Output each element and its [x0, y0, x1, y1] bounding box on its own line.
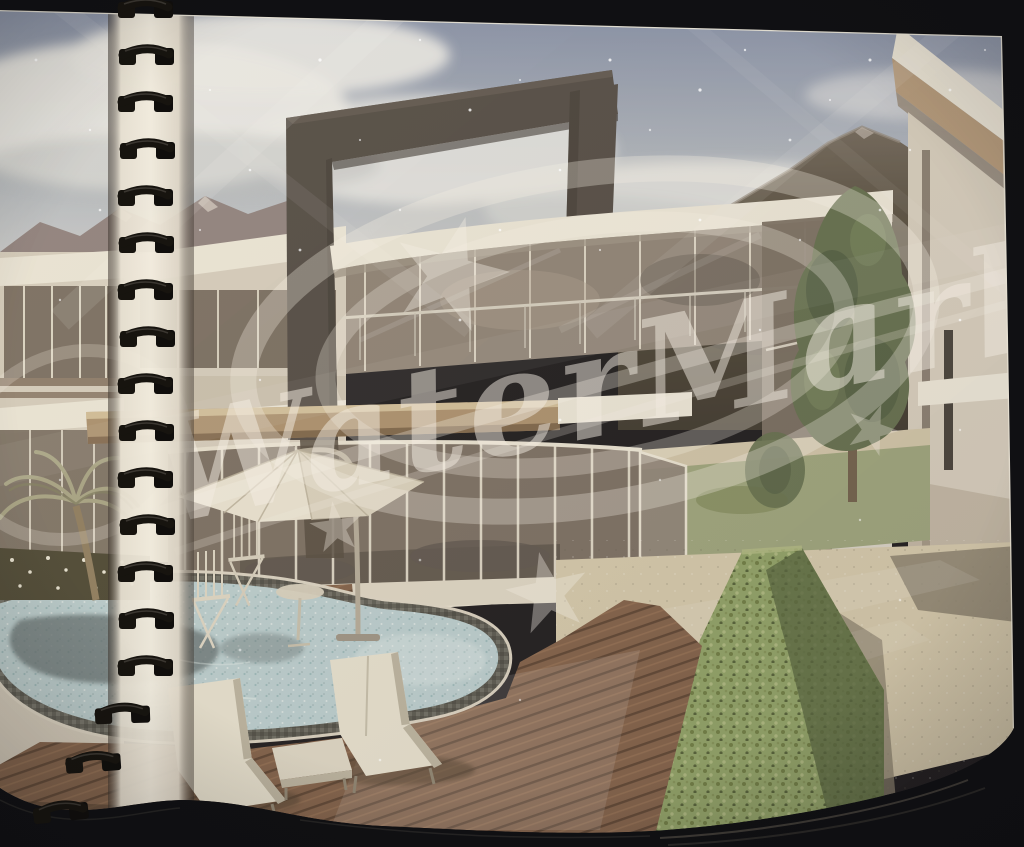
scene-canvas: WaterMark	[0, 0, 1024, 847]
photographed-brochure: WaterMark	[0, 0, 1024, 847]
vignette	[0, 0, 1024, 847]
